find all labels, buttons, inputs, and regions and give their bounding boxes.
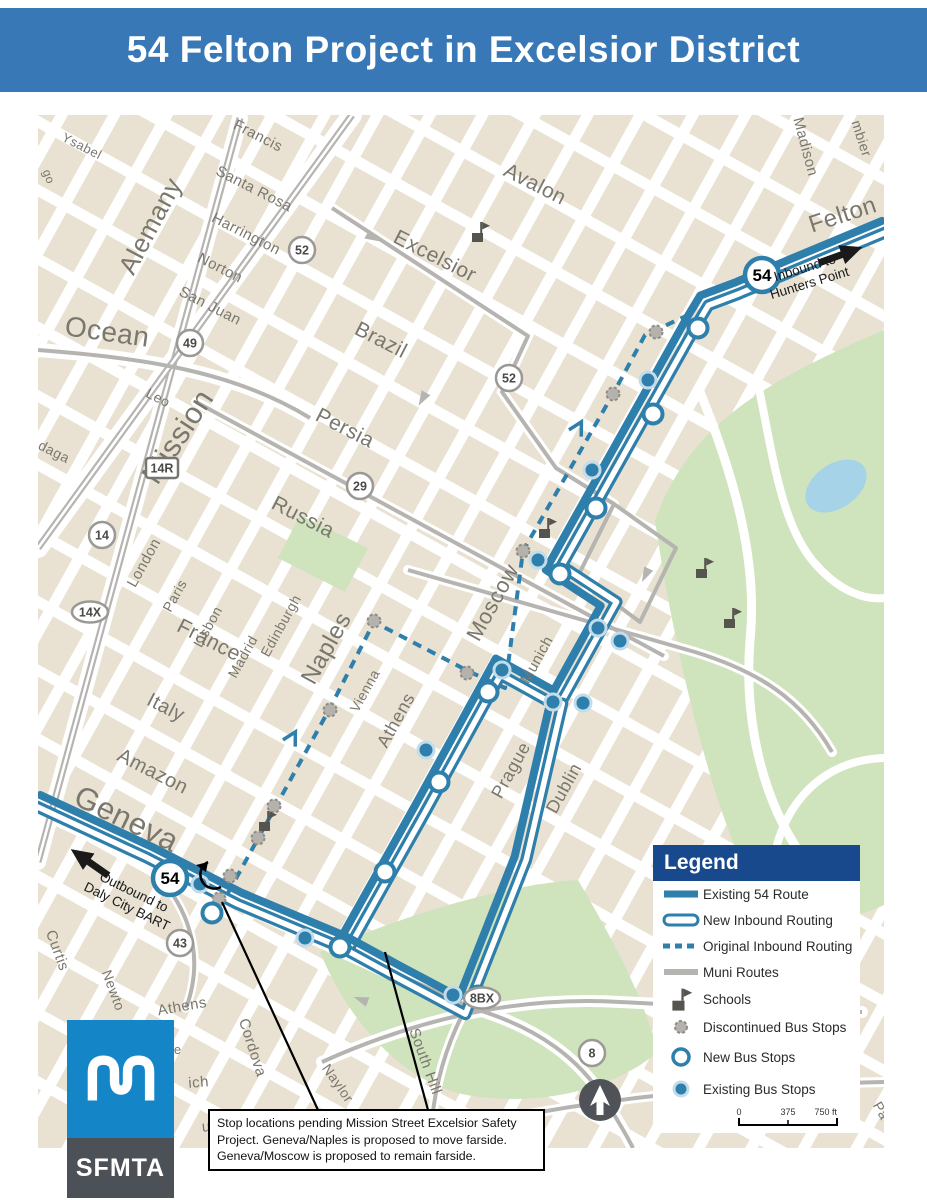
legend-item-label: New Bus Stops bbox=[703, 1050, 795, 1065]
annotation-line: Project. Geneva/Naples is proposed to mo… bbox=[217, 1132, 536, 1149]
annotation-box: Stop locations pending Mission Street Ex… bbox=[208, 1109, 545, 1171]
legend-item-label: Discontinued Bus Stops bbox=[703, 1020, 846, 1035]
legend-title: Legend bbox=[664, 851, 739, 875]
legend-item-label: Existing Bus Stops bbox=[703, 1082, 816, 1097]
legend-header: Legend bbox=[653, 845, 860, 881]
svg-text:8BX: 8BX bbox=[470, 992, 495, 1006]
legend-item-gray-line: Muni Routes bbox=[653, 959, 860, 985]
svg-text:52: 52 bbox=[502, 372, 516, 386]
legend-item-solid-line: Existing 54 Route bbox=[653, 881, 860, 907]
legend-item-label: Original Inbound Routing bbox=[703, 939, 852, 954]
legend-items: Existing 54 RouteNew Inbound RoutingOrig… bbox=[653, 881, 860, 1105]
svg-text:43: 43 bbox=[173, 937, 187, 951]
legend-item-disc-stop: Discontinued Bus Stops bbox=[653, 1013, 860, 1041]
annotation-line: Stop locations pending Mission Street Ex… bbox=[217, 1115, 536, 1132]
svg-text:14R: 14R bbox=[151, 462, 174, 476]
svg-text:49: 49 bbox=[183, 337, 197, 351]
legend-item-label: New Inbound Routing bbox=[703, 913, 833, 928]
scale-bar: 0375750 ft bbox=[653, 1105, 853, 1135]
legend-item-label: Schools bbox=[703, 992, 751, 1007]
svg-text:54: 54 bbox=[753, 266, 772, 285]
transit-map-poster: 54 Felton Project in Excelsior District … bbox=[0, 0, 927, 1200]
svg-text:375: 375 bbox=[780, 1107, 795, 1117]
legend-panel: Legend Existing 54 RouteNew Inbound Rout… bbox=[653, 845, 860, 1133]
muni-worm-icon bbox=[67, 1020, 174, 1138]
legend-item-label: Existing 54 Route bbox=[703, 887, 809, 902]
svg-text:750 ft: 750 ft bbox=[814, 1107, 837, 1117]
svg-text:29: 29 bbox=[353, 480, 367, 494]
legend-item-hollow-line: New Inbound Routing bbox=[653, 907, 860, 933]
page-title: 54 Felton Project in Excelsior District bbox=[127, 29, 800, 71]
legend-item-label: Muni Routes bbox=[703, 965, 779, 980]
svg-text:0: 0 bbox=[736, 1107, 741, 1117]
legend-item-exist-stop: Existing Bus Stops bbox=[653, 1073, 860, 1105]
title-bar: 54 Felton Project in Excelsior District bbox=[0, 8, 927, 92]
legend-item-new-stop: New Bus Stops bbox=[653, 1041, 860, 1073]
svg-text:14X: 14X bbox=[79, 606, 102, 620]
svg-text:ich: ich bbox=[188, 1073, 210, 1092]
svg-text:52: 52 bbox=[295, 244, 309, 258]
sfmta-logo: SFMTA bbox=[67, 1020, 174, 1198]
legend-item-dashed-line: Original Inbound Routing bbox=[653, 933, 860, 959]
svg-text:54: 54 bbox=[161, 869, 180, 888]
annotation-line: Geneva/Moscow is proposed to remain fars… bbox=[217, 1148, 536, 1165]
sfmta-wordmark: SFMTA bbox=[67, 1138, 174, 1198]
legend-item-school: Schools bbox=[653, 985, 860, 1013]
svg-text:14: 14 bbox=[95, 529, 109, 543]
svg-text:8: 8 bbox=[589, 1047, 596, 1061]
